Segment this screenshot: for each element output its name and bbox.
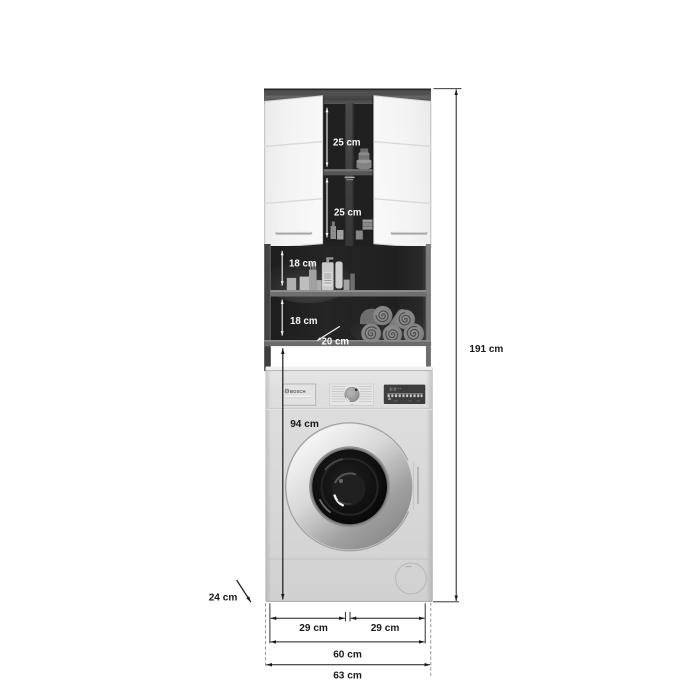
svg-text:BOSCH: BOSCH bbox=[290, 389, 306, 394]
svg-text:24 cm: 24 cm bbox=[209, 592, 238, 603]
svg-text:25 cm: 25 cm bbox=[333, 138, 361, 149]
svg-text:29 cm: 29 cm bbox=[371, 623, 400, 634]
svg-text:94 cm: 94 cm bbox=[290, 419, 319, 430]
svg-text:29 cm: 29 cm bbox=[299, 623, 328, 634]
svg-text:191 cm: 191 cm bbox=[469, 344, 503, 355]
svg-text:20 cm: 20 cm bbox=[322, 337, 350, 348]
svg-text:25 cm: 25 cm bbox=[334, 208, 362, 219]
svg-text:18 cm: 18 cm bbox=[289, 259, 317, 270]
svg-text:60 cm: 60 cm bbox=[333, 649, 362, 660]
svg-text:18 cm: 18 cm bbox=[290, 316, 318, 327]
svg-text:63 cm: 63 cm bbox=[333, 671, 362, 682]
